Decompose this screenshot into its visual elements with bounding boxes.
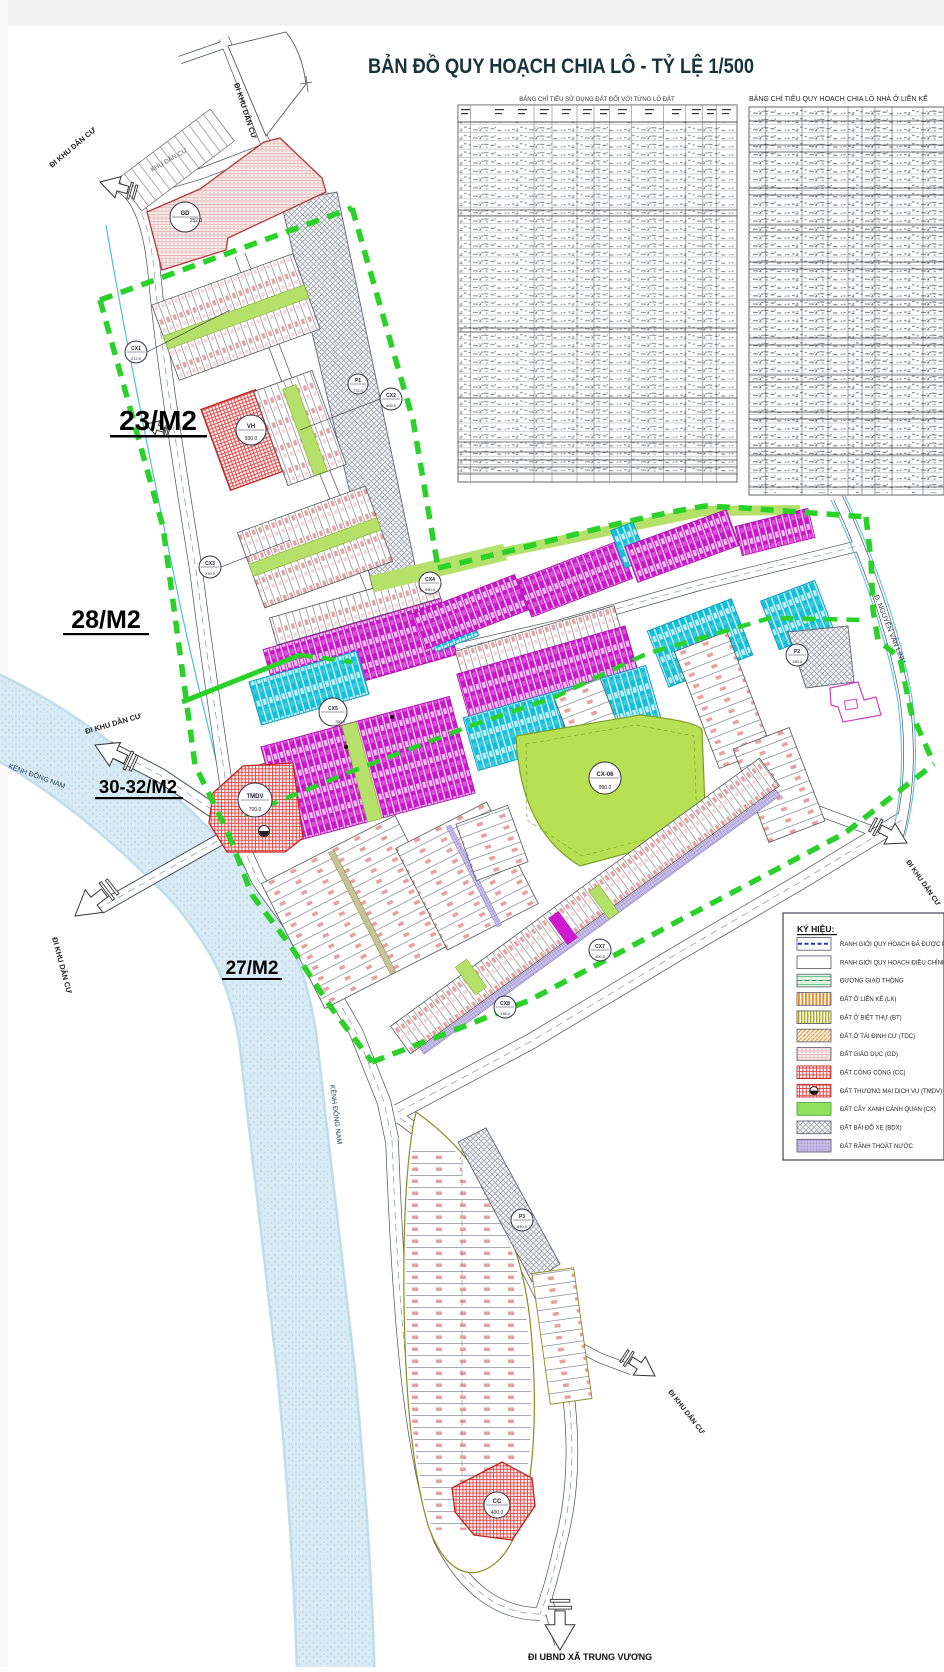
svg-text:ĐẤT Ở BIỆT THỰ (BT): ĐẤT Ở BIỆT THỰ (BT) <box>840 1013 902 1021</box>
svg-text:ĐƯỜNG GIAO THÔNG: ĐƯỜNG GIAO THÔNG <box>840 978 904 985</box>
svg-text:ĐẤT Ở TÁI ĐỊNH CƯ (TDC): ĐẤT Ở TÁI ĐỊNH CƯ (TDC) <box>840 1033 915 1040</box>
svg-text:760.0: 760.0 <box>335 719 346 724</box>
svg-text:BẢN ĐỒ QUY HOẠCH CHIA LÔ - TỶ: BẢN ĐỒ QUY HOẠCH CHIA LÔ - TỶ LỆ 1/500 <box>368 53 754 78</box>
svg-text:30-32/M2: 30-32/M2 <box>99 776 177 797</box>
svg-text:409.0: 409.0 <box>386 403 397 408</box>
svg-text:700.0: 700.0 <box>249 807 262 813</box>
svg-text:P1: P1 <box>355 378 361 384</box>
svg-text:ĐẤT CÔNG CỘNG (CC): ĐẤT CÔNG CỘNG (CC) <box>840 1069 906 1076</box>
svg-text:ĐI UBND XÃ TRUNG VƯƠNG: ĐI UBND XÃ TRUNG VƯƠNG <box>528 1652 652 1662</box>
svg-text:KÝ HIỆU:: KÝ HIỆU: <box>797 923 834 934</box>
svg-text:990.0: 990.0 <box>599 785 612 791</box>
svg-text:BẢNG CHỈ TIÊU SỬ DỤNG ĐẤT ĐỐI: BẢNG CHỈ TIÊU SỬ DỤNG ĐẤT ĐỐI VỚI TỪNG L… <box>519 95 675 103</box>
svg-text:252.0: 252.0 <box>190 218 203 224</box>
svg-text:VH: VH <box>247 424 255 430</box>
svg-text:RANH GIỚI QUY HOẠCH ĐÃ ĐƯỢC PH: RANH GIỚI QUY HOẠCH ĐÃ ĐƯỢC PHÊ <box>840 940 944 948</box>
svg-text:640.0: 640.0 <box>517 1224 528 1229</box>
svg-text:ĐẤT BÃI ĐỖ XE (BDX): ĐẤT BÃI ĐỖ XE (BDX) <box>840 1125 902 1132</box>
svg-text:590.0: 590.0 <box>425 587 436 592</box>
svg-text:CX1: CX1 <box>131 346 141 352</box>
svg-text:CX2: CX2 <box>386 393 396 399</box>
svg-text:28/M2: 28/M2 <box>71 606 140 634</box>
svg-text:CX5: CX5 <box>328 706 338 712</box>
svg-text:RANH GIỚI QUY HOẠCH ĐIỀU CHỈNH: RANH GIỚI QUY HOẠCH ĐIỀU CHỈNH <box>840 959 944 966</box>
svg-text:TMDV: TMDV <box>247 794 264 800</box>
svg-text:CX7: CX7 <box>595 944 605 950</box>
svg-text:772.0: 772.0 <box>353 388 364 393</box>
svg-text:135.0: 135.0 <box>792 659 803 664</box>
svg-text:ĐẤT Ở LIỀN KẾ (LK): ĐẤT Ở LIỀN KẾ (LK) <box>840 996 896 1003</box>
svg-text:23/M2: 23/M2 <box>119 405 197 436</box>
svg-text:400.0: 400.0 <box>491 1510 504 1516</box>
svg-text:GD: GD <box>181 211 191 217</box>
svg-text:400.0: 400.0 <box>595 954 606 959</box>
svg-text:930.0: 930.0 <box>245 436 258 442</box>
svg-text:ĐẤT RÃNH THOÁT NƯỚC: ĐẤT RÃNH THOÁT NƯỚC <box>840 1143 914 1150</box>
svg-text:ĐẤT GIÁO DỤC (GD): ĐẤT GIÁO DỤC (GD) <box>840 1051 898 1058</box>
svg-text:272.0: 272.0 <box>131 356 142 361</box>
svg-text:P2: P2 <box>794 649 800 655</box>
svg-text:ĐẤT THƯƠNG MẠI DỊCH VỤ (TMDV): ĐẤT THƯƠNG MẠI DỊCH VỤ (TMDV) <box>840 1088 942 1095</box>
svg-text:CX3: CX3 <box>205 561 215 567</box>
svg-text:CX8: CX8 <box>500 1001 510 1007</box>
svg-text:370.0: 370.0 <box>205 571 216 576</box>
svg-text:P3: P3 <box>519 1214 525 1220</box>
svg-text:CX-06: CX-06 <box>596 772 614 778</box>
svg-text:CX4: CX4 <box>425 577 435 583</box>
svg-text:27/M2: 27/M2 <box>226 958 279 979</box>
svg-text:135.0: 135.0 <box>500 1011 511 1016</box>
svg-text:ĐẤT CÂY XANH CẢNH QUAN (CX): ĐẤT CÂY XANH CẢNH QUAN (CX) <box>840 1106 936 1113</box>
svg-text:CC: CC <box>493 1499 502 1505</box>
